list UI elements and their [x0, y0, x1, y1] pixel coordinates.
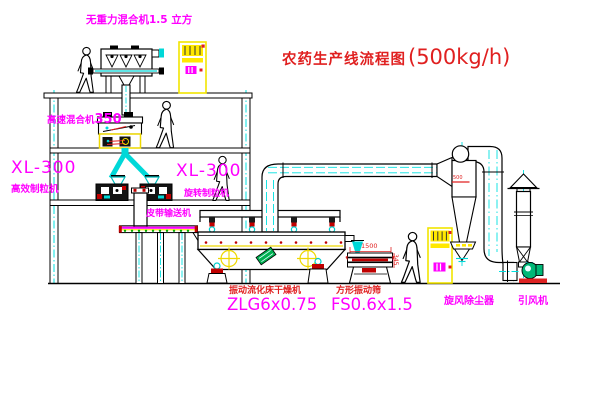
high-speed-mixer-model: 350: [95, 112, 122, 127]
high-speed-mixer-name: 高速混合机: [47, 115, 95, 126]
drawing-title: 农药生产线流程图(500kg/h): [282, 47, 510, 68]
sieve-model-label: FS0.6x1.5: [331, 297, 413, 314]
control-cabinet-top: [179, 42, 206, 93]
title-capacity: (500kg/h): [408, 45, 510, 69]
sieve-height-dimension: 345: [392, 254, 398, 265]
fan-label: 引风机: [518, 297, 548, 307]
cyclone-label: 旋风除尘器: [444, 297, 494, 307]
belt-conveyor: [119, 226, 208, 284]
person-icon: [401, 232, 420, 282]
control-cabinet-ground: [428, 228, 452, 283]
granulator-right-model-label: XL-300: [176, 163, 241, 180]
dryer-model-label: ZLG6x0.75: [227, 297, 317, 314]
dryer-exhaust-duct: [262, 163, 437, 233]
granulator-left-model-label: XL-300: [11, 160, 76, 177]
granulator-left-name-label: 高效制粒机: [11, 185, 59, 195]
sieve-length-dimension: 1500: [361, 243, 378, 250]
discharge-downpipe: [132, 188, 149, 227]
fluid-bed-dryer: [198, 232, 364, 283]
gravity-mixer-label: 无重力混合机1.5 立方: [86, 15, 192, 26]
gravity-free-mixer: [88, 46, 164, 117]
cyclone-level-dimension: 500: [453, 176, 463, 181]
vibrating-sieve: [346, 247, 395, 283]
person-icon: [156, 101, 174, 147]
title-text: 农药生产线流程图: [282, 52, 406, 68]
cad-flow-diagram: 无重力混合机1.5 立方 农药生产线流程图(500kg/h) 高速混合机350 …: [0, 0, 600, 403]
high-speed-mixer-label: 高速混合机350: [47, 110, 122, 126]
granulator-right-name-label: 旋转制粒机: [184, 190, 229, 199]
granulator-left: [96, 175, 128, 201]
belt-conveyor-label: 皮带输送机: [146, 210, 191, 219]
